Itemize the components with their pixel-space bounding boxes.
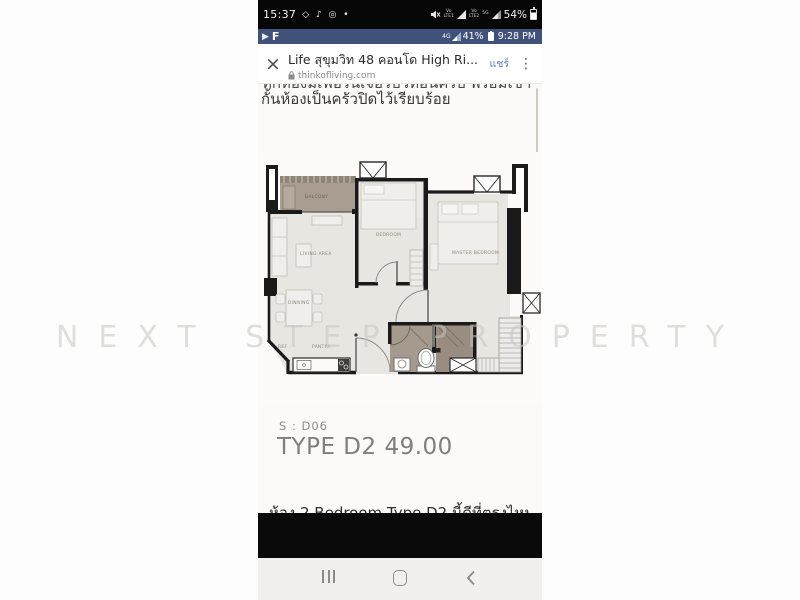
room-label-dinning: DINNING xyxy=(288,300,310,306)
page-title: Life สุขุมวิท 48 คอนโด High Ri... xyxy=(288,52,478,67)
signal-icon-2 xyxy=(492,10,501,19)
phone-screen: 15:37 ◇ ♪ ◎ • Vo LTE1 Vo LTE2 5G 54% ▶ F… xyxy=(258,0,542,600)
floorplan-drawing: BALCONY xyxy=(260,152,542,404)
share-button[interactable]: แชร์ xyxy=(481,55,517,72)
recents-icon[interactable] xyxy=(322,570,335,583)
room-label-balcony: BALCONY xyxy=(305,194,328,200)
black-cover-bar xyxy=(258,513,542,558)
url-row[interactable]: thinkofliving.com xyxy=(288,71,481,81)
speaker-muted-icon xyxy=(430,9,441,20)
battery-icon xyxy=(530,9,537,20)
status-time: 15:37 xyxy=(263,8,296,21)
browser-header: × Life สุขุมวิท 48 คอนโด High Ri... thin… xyxy=(258,44,542,84)
network-4g-label: 4G xyxy=(442,33,450,40)
room-label-ref: REF xyxy=(278,344,288,350)
site-url: thinkofliving.com xyxy=(298,71,375,81)
unit-code: S : D06 xyxy=(279,419,328,433)
close-icon[interactable]: × xyxy=(258,49,288,79)
back-icon[interactable] xyxy=(466,570,476,586)
signal-icon-1 xyxy=(457,10,466,19)
floorplan-image: BALCONY xyxy=(260,152,542,404)
android-nav-bar xyxy=(258,558,542,600)
battery-icon-inner xyxy=(488,32,494,41)
article-paragraph: กั้นห้องเป็นครัวปิดไว้เรียบร้อย xyxy=(261,88,533,111)
room-label-pantry: PANTRY xyxy=(312,344,331,350)
room-label-master: MASTER BEDROOM xyxy=(452,250,499,256)
room-label-bedroom: BEDROOM xyxy=(376,232,401,238)
network-5g-label: 5G xyxy=(482,12,488,17)
status-bar: 15:37 ◇ ♪ ◎ • Vo LTE1 Vo LTE2 5G 54% xyxy=(258,0,542,29)
battery-percent: 54% xyxy=(504,9,527,21)
battery-percent-inner: 41% xyxy=(463,31,484,42)
lock-icon xyxy=(288,71,295,80)
room-label-living: LIVING AREA xyxy=(300,251,332,257)
signal-icon-inner xyxy=(452,32,461,41)
flipboard-status-bar: ▶ F 4G 41% 9:28 PM xyxy=(258,29,542,44)
notification-icons: ◇ ♪ ◎ • xyxy=(302,10,350,20)
screenshot-canvas: 15:37 ◇ ♪ ◎ • Vo LTE1 Vo LTE2 5G 54% ▶ F… xyxy=(0,0,800,600)
clock-inner: 9:28 PM xyxy=(498,31,536,42)
volte2-label: Vo LTE2 xyxy=(469,10,479,19)
page-title-block: Life สุขุมวิท 48 คอนโด High Ri... thinko… xyxy=(288,47,481,81)
unit-type: TYPE D2 49.00 xyxy=(277,434,453,460)
home-icon[interactable] xyxy=(393,570,407,586)
play-icon: ▶ xyxy=(262,32,269,42)
flipboard-icon: F xyxy=(272,30,280,43)
volte1-label: Vo LTE1 xyxy=(444,10,454,19)
overflow-menu-icon[interactable]: ⋮ xyxy=(517,56,542,72)
